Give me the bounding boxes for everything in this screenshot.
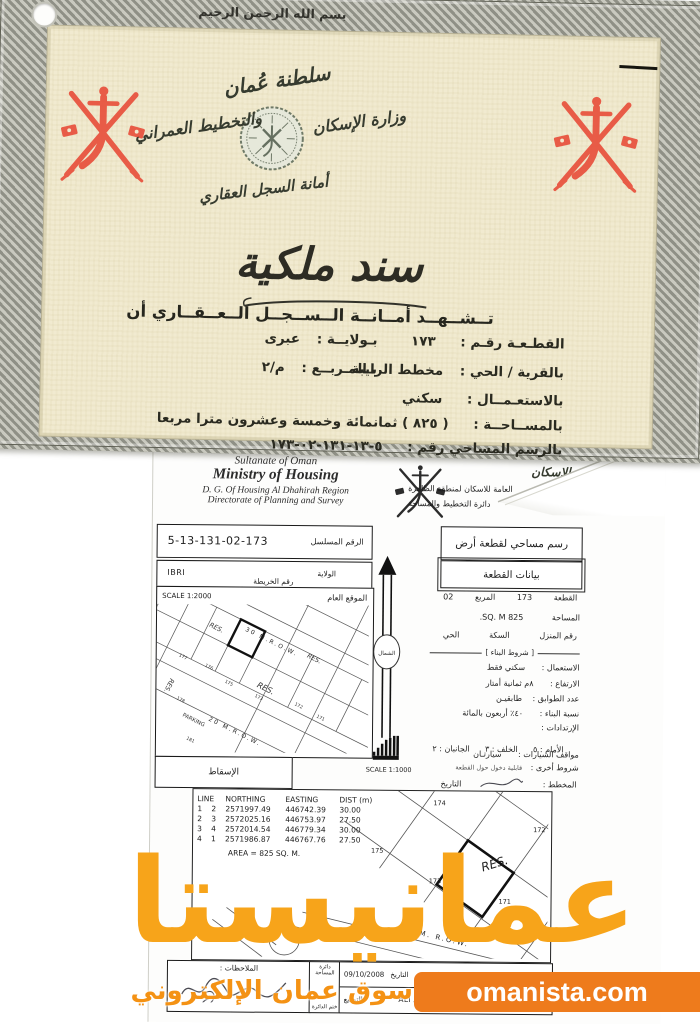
road-20m-label: 20 M.R.O.W. — [207, 716, 262, 748]
ownership-certificate: بسم الله الرحمن الرحيم — [0, 0, 700, 463]
floors-row: عدد الطوابق : طابقيـن — [439, 693, 579, 703]
house-no-label: رقم المنزل — [539, 631, 577, 640]
drawing-title: رسم مساحي لقطعة أرض — [455, 537, 568, 550]
location-map-box: SCALE 1:2000 الموقع العام — [155, 586, 374, 759]
red-oman-emblem-right-icon — [548, 81, 643, 209]
setbacks-label: الإرتدادات : — [541, 723, 579, 732]
serial-box: 5-13-131-02-173 الرقم المسلسل — [157, 524, 373, 560]
watermark-domain-text: omanista.com — [466, 977, 648, 1008]
square-label: بـالمـربــع : — [301, 360, 377, 378]
use-label: بالاستعـمــال : — [467, 391, 564, 409]
header-en-line2: Ministry of Housing — [173, 466, 378, 485]
plot-num: 176 — [204, 663, 214, 672]
date-label: التاريخ — [441, 779, 462, 788]
planner-label: المخطط : — [543, 780, 577, 789]
serial-label: الرقم المسلسل — [311, 537, 364, 546]
col-easting: EASTING — [285, 795, 339, 805]
use-row: الاستعمال : سكني فقط — [440, 662, 580, 672]
use-value: سكني — [402, 390, 443, 407]
site-plan-map: RES. RES. RES. RES. 30 M.R.O.W. 20 M.R.O… — [156, 604, 369, 754]
cell: 2571997.49 — [225, 804, 285, 815]
serial-number: 5-13-131-02-173 — [168, 534, 268, 548]
other-conditions-value: قابلية دخول حول القطعة — [455, 763, 522, 772]
map-number-label: رقم الخريطة — [253, 577, 293, 586]
plot-num: 172 — [293, 701, 303, 710]
ratio-row: نسبة البناء : ٤٠٪ أربعون بالمائة — [439, 708, 579, 718]
area-label: بالمســاحــة : — [473, 417, 563, 435]
plot-value: 173 — [517, 593, 532, 602]
plot-data-title: بيانات القطعة — [483, 569, 540, 580]
watermark-domain-banner: omanista.com — [414, 972, 700, 1012]
cell: 2572025.16 — [225, 814, 285, 825]
area-label: المساحة — [552, 613, 580, 622]
other-conditions-label: شروط أخرى : — [531, 763, 579, 772]
plot-number-value: ١٧٣ — [411, 333, 436, 350]
parking-value: سيارتـان — [473, 750, 501, 759]
conditions-title: [ شروط البناء ] — [481, 648, 538, 657]
plot-data-title-box: بيانات القطعة — [440, 560, 582, 589]
res-label-2: RES. — [306, 652, 323, 666]
col-dist: DIST (m) — [339, 795, 373, 805]
scale-2000-label: SCALE 1:2000 — [162, 592, 211, 600]
parking-label: مواقف السيارات : — [518, 750, 579, 760]
use-field: بالاستعـمــال : سكني — [402, 390, 564, 409]
square-value: 02 — [443, 592, 453, 601]
area-value: 825 SQ. M. — [480, 613, 524, 622]
square-label: المربع — [475, 593, 495, 602]
scale-bar — [373, 736, 399, 760]
north-label: الشمال — [378, 651, 395, 657]
drawing-title-box: رسم مساحي لقطعة أرض — [441, 526, 583, 561]
use-value: سكني فقط — [487, 663, 525, 672]
plot-num: 178 — [175, 695, 185, 704]
wilaya-value: IBRI — [167, 568, 185, 577]
square-value: م/٢ — [262, 359, 285, 375]
street-label: السكة — [489, 631, 510, 640]
planner-date-row: المخطط : التاريخ — [439, 776, 579, 791]
cell: 446753.97 — [285, 815, 339, 825]
plot-num: 177 — [178, 652, 188, 661]
cell: 30.00 — [339, 805, 373, 815]
scanned-deed-page: Sultanate of Oman Ministry of Housing D.… — [0, 0, 700, 1024]
col-northing: NORTHING — [225, 794, 285, 805]
other-conditions-row: شروط أخرى : قابلية دخول حول القطعة — [439, 762, 579, 772]
plot-number-field: القطـعـة رقـم : ١٧٣ — [411, 333, 565, 352]
header-english-block: Sultanate of Oman Ministry of Housing D.… — [173, 454, 378, 507]
planner-signature — [479, 777, 525, 791]
survey-number-value: ١٧٣-٠٢-١٣١-١٣-٥ — [269, 436, 382, 454]
height-row: الارتفاع : ٨م ثمانية أمتار — [439, 678, 579, 688]
height-label: الارتفاع : — [550, 679, 579, 688]
wilaya-label: بـولايــة : — [317, 331, 378, 348]
deed-title: سند ملكية — [229, 237, 430, 292]
location-label: الموقع العام — [327, 593, 367, 602]
plot-square-row: القطعة 173 المربع 02 — [440, 592, 580, 602]
ratio-value: ٤٠٪ أربعون بالمائة — [462, 708, 523, 718]
use-label: الاستعمال : — [542, 663, 580, 672]
wilaya-field: بـولايــة : عبرى — [264, 330, 377, 348]
house-street-row: رقم المنزل السكة الحي — [440, 630, 580, 640]
ratio-label: نسبة البناء : — [540, 709, 580, 718]
res-label-1: RES. — [208, 621, 225, 635]
height-value: ٨م ثمانية أمتار — [486, 679, 534, 688]
cell: 27.50 — [339, 815, 373, 825]
cell: 1 — [197, 804, 211, 814]
district-label: الحي — [443, 630, 460, 639]
scale-1000-label: SCALE 1:1000 — [349, 765, 429, 774]
road-30m-label: 30 M.R.O.W. — [244, 626, 299, 658]
square-field: بـالمـربــع : م/٢ — [262, 359, 378, 377]
watermark-tagline: سوق عمان الإلكتروني — [130, 976, 413, 1006]
cell: 2 — [197, 814, 211, 824]
plot-number-label: القطـعـة رقـم : — [460, 334, 565, 352]
plot-num: 171 — [315, 714, 325, 723]
wilaya-label: الولاية — [317, 569, 336, 578]
wilaya-value: عبرى — [264, 330, 300, 347]
plot-label: القطعة — [554, 593, 577, 602]
north-arrow: الشمال — [372, 556, 402, 762]
parking-label: PARKING — [181, 712, 205, 728]
survey-number-label: بالرسم المساحي رقم : — [407, 439, 562, 458]
floors-value: طابقيـن — [496, 694, 522, 703]
watermark-brand-text: عمانيستا — [128, 842, 637, 960]
detail-plot-174: 174 — [433, 799, 445, 807]
conditions-title-wrap: [ شروط البناء ] — [440, 647, 580, 657]
header-en-line4: Directorate of Planning and Survey — [173, 495, 378, 507]
projection-box: الإسقاط — [155, 756, 293, 789]
cell: 3 — [211, 814, 225, 824]
parking-row: مواقف السيارات : سيارتـان — [439, 749, 579, 759]
setbacks-label-row: الإرتدادات : — [439, 722, 579, 732]
res-label-3: RES. — [162, 677, 176, 694]
cell: 2 — [211, 804, 225, 814]
floors-label: عدد الطوابق : — [532, 694, 579, 703]
projection-label: الإسقاط — [208, 767, 239, 777]
plot-num: 181 — [185, 735, 195, 744]
village-label: بالقرية / الحي : — [460, 363, 564, 381]
res-label-subject: RES. — [256, 680, 276, 696]
area-row: المساحة 825 SQ. M. — [440, 612, 580, 622]
cell: 446742.39 — [285, 805, 339, 815]
col-line: LINE — [197, 794, 225, 804]
